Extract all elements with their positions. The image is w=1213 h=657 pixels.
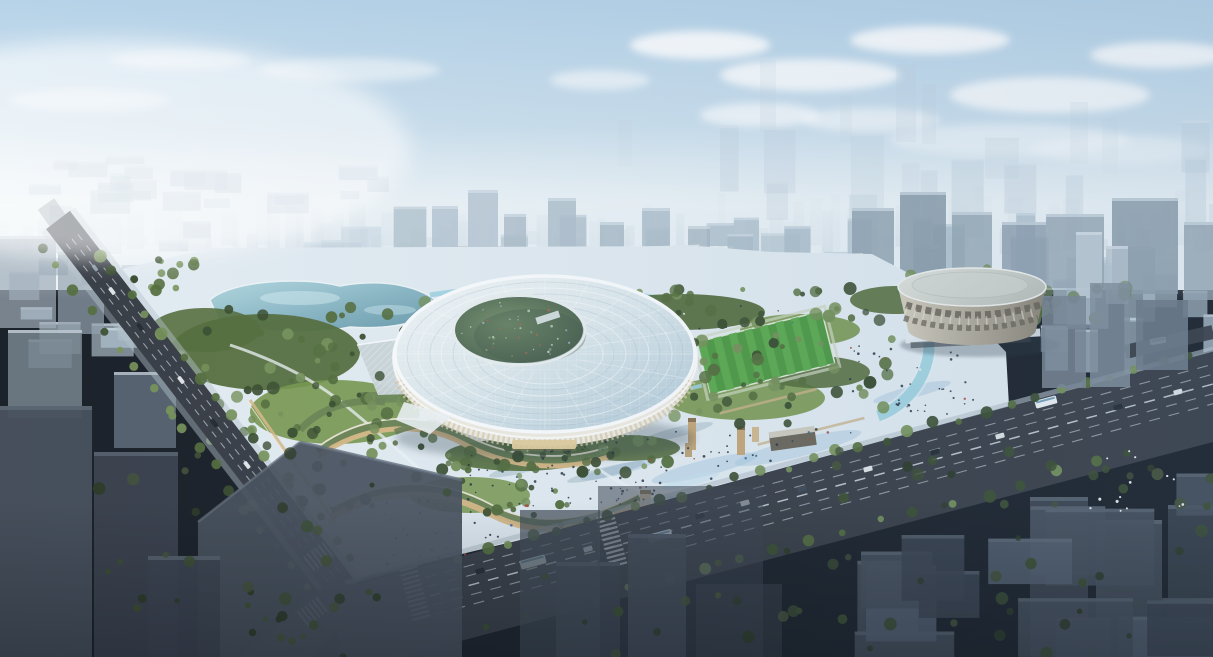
rendering-frame [0, 0, 1213, 657]
bottom-vignette [0, 500, 1213, 657]
scene [0, 0, 1213, 657]
